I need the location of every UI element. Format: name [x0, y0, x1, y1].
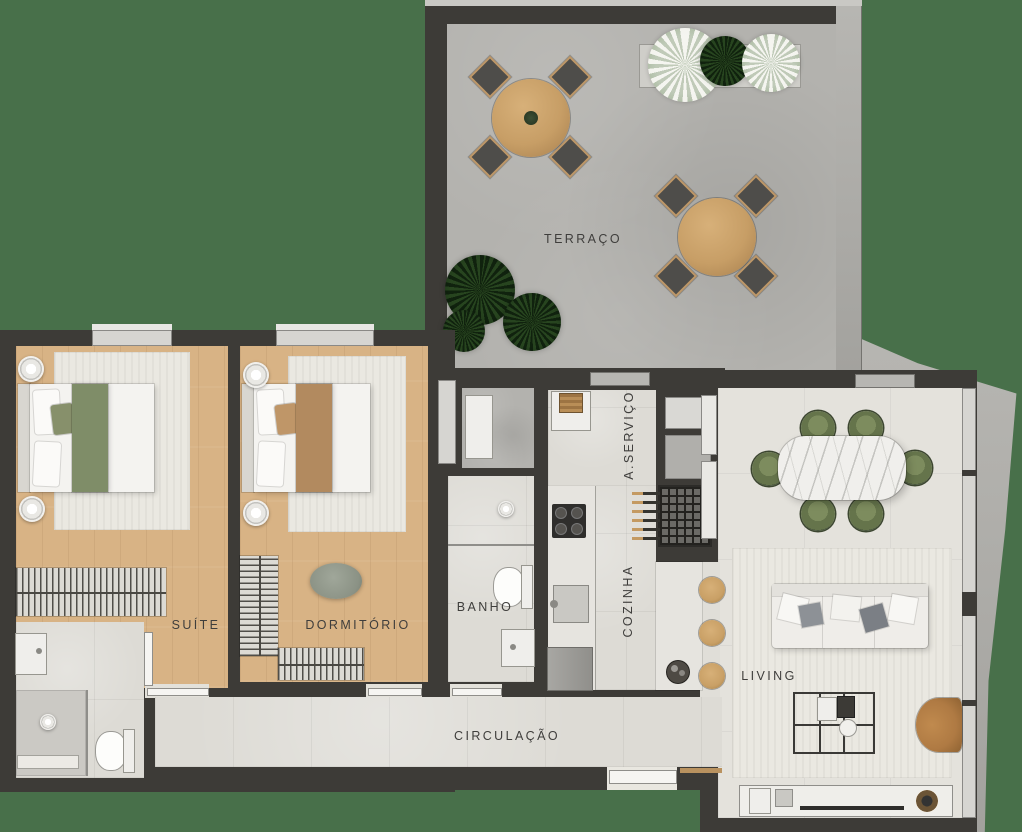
- sofa-backrest: [772, 584, 928, 596]
- suite-label: SUÍTE: [172, 618, 221, 632]
- dormitorio-pillow: [257, 441, 285, 486]
- suite-nightstand-lamp: [18, 356, 44, 382]
- wardrobe-rod: [259, 556, 261, 656]
- shower-glass: [86, 690, 88, 776]
- dormitorio-pouf: [310, 563, 362, 599]
- window-mullion: [962, 592, 976, 616]
- window-mullion: [962, 470, 976, 476]
- tv: [800, 806, 904, 810]
- dormitorio-bed-headboard: [242, 384, 254, 492]
- stove-burner-icon: [556, 524, 566, 534]
- dormitorio-blanket: [296, 384, 332, 492]
- faucet-icon: [550, 600, 558, 608]
- circulacao-floor: [155, 697, 722, 767]
- stove-burner-icon: [556, 508, 566, 518]
- dormitorio-nightstand-lamp: [243, 362, 269, 388]
- entry-door: [609, 770, 677, 784]
- dormitorio-wardrobe-rack-horizontal: [278, 648, 364, 680]
- ensuite-vanity: [16, 634, 46, 674]
- serving-tray: [667, 661, 689, 683]
- living-terrace-door: [855, 374, 915, 388]
- white-plant-icon: [742, 34, 800, 92]
- kitchen-sink: [554, 586, 588, 622]
- terrace-left-wall: [425, 6, 447, 372]
- ensuite-toilet-tank: [124, 730, 134, 772]
- terrace-label: TERRAÇO: [544, 232, 622, 246]
- servico-terrace-door: [590, 372, 650, 386]
- stove-burner-icon: [572, 508, 582, 518]
- suite-wardrobe-rack: [16, 568, 166, 616]
- terrace-top-wall: [425, 6, 862, 24]
- speaker: [916, 790, 938, 812]
- shower-head-icon: [498, 501, 514, 517]
- floor-plan: TERRAÇO SUÍTE DORMITÓRI: [0, 0, 1022, 832]
- storage-cabinet: [466, 396, 492, 458]
- living-label: LIVING: [741, 669, 796, 683]
- laundry-basket-icon: [560, 394, 582, 412]
- terrace-parapet: [836, 6, 862, 372]
- banho-toilet-tank: [522, 566, 532, 608]
- terrace-table: [678, 198, 756, 276]
- bath-mat: [18, 756, 78, 768]
- grill-skewers: [632, 492, 660, 544]
- skewer-icon: [632, 510, 660, 513]
- faucet-icon: [36, 648, 42, 654]
- sofa-pillow: [831, 595, 861, 622]
- bar-stool: [699, 620, 725, 646]
- table-centerpiece: [524, 111, 538, 125]
- cozinha-label: COZINHA: [621, 564, 635, 637]
- dormitorio-window: [276, 330, 374, 346]
- faucet-icon: [510, 644, 516, 650]
- window-mullion: [962, 700, 976, 706]
- green-plant-icon: [503, 293, 561, 351]
- skewer-icon: [632, 528, 660, 531]
- skewer-icon: [632, 492, 660, 495]
- dormitorio-wardrobe-rack-vertical: [240, 556, 278, 656]
- armchair: [916, 698, 962, 752]
- bar-stool: [699, 663, 725, 689]
- dining-table: [778, 436, 906, 500]
- living-niche: [702, 462, 716, 538]
- skewer-icon: [632, 519, 660, 522]
- fridge: [548, 648, 592, 690]
- stove-burner-icon: [572, 524, 582, 534]
- wardrobe-rod: [278, 664, 364, 666]
- sideboard-box: [776, 790, 792, 806]
- shelf-item-frame: [838, 697, 854, 717]
- tray-item-icon: [679, 670, 685, 676]
- suite-door: [147, 688, 209, 696]
- banho-door: [452, 688, 502, 696]
- dining-chair: [801, 497, 835, 531]
- shelf-item-box: [818, 698, 836, 720]
- entry-cabinet: [680, 768, 722, 773]
- tray-item-icon: [671, 665, 678, 672]
- internal-window: [438, 380, 456, 464]
- banho-label: BANHO: [457, 600, 513, 614]
- sideboard-minibar: [750, 789, 770, 813]
- ensuite-toilet: [96, 732, 126, 770]
- dormitorio-label: DORMITÓRIO: [305, 618, 410, 632]
- living-niche: [702, 396, 716, 454]
- dormitorio-door: [368, 688, 422, 696]
- sofa-pillow: [888, 594, 918, 624]
- banho-vanity: [502, 630, 534, 666]
- dining-chair: [849, 497, 883, 531]
- wardrobe-rod: [16, 592, 166, 594]
- shelf-item-bowl: [840, 720, 856, 736]
- banho-shower-glass: [448, 544, 534, 546]
- shower-head-icon: [40, 714, 56, 730]
- suite-bed-headboard: [18, 384, 30, 492]
- skewer-icon: [632, 537, 660, 540]
- servico-label: A.SERVIÇO: [622, 390, 636, 479]
- skewer-icon: [632, 501, 660, 504]
- bar-stool: [699, 577, 725, 603]
- suite-pillow: [33, 441, 61, 486]
- circulacao-label: CIRCULAÇÃO: [454, 729, 560, 743]
- ensuite-door: [144, 632, 153, 686]
- dormitorio-nightstand-lamp: [243, 500, 269, 526]
- sofa-pillow: [798, 602, 823, 627]
- suite-nightstand-lamp: [19, 496, 45, 522]
- suite-window: [92, 330, 172, 346]
- suite-blanket: [72, 384, 108, 492]
